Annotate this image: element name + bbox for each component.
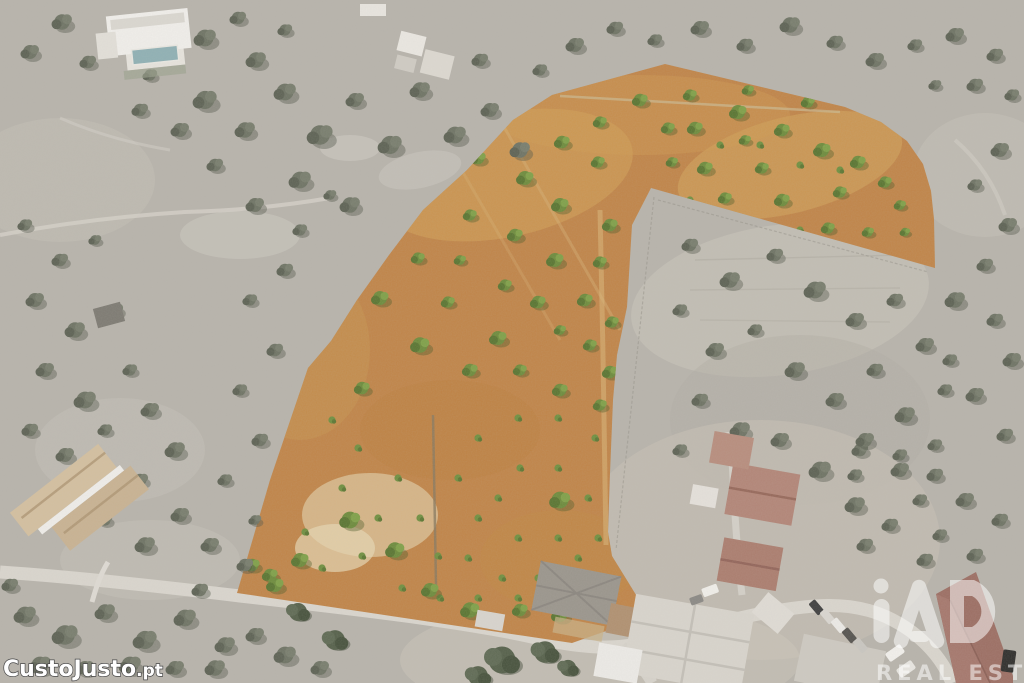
iad-logo-i-dot xyxy=(874,579,889,594)
watermark-brand: CustoJusto xyxy=(3,657,136,682)
watermark-tld: .pt xyxy=(136,661,163,681)
aerial-photo: CustoJusto.pt REAL ESTATE xyxy=(0,0,1024,683)
iad-logo-a-bar xyxy=(909,631,930,642)
iad-logo-i-stem xyxy=(874,599,890,643)
photo-grain xyxy=(0,0,1024,683)
iad-logo-subtitle: REAL ESTATE xyxy=(876,661,1024,683)
watermark-custojusto: CustoJusto.pt xyxy=(3,657,163,682)
aerial-photo-svg: CustoJusto.pt REAL ESTATE xyxy=(0,0,1024,683)
